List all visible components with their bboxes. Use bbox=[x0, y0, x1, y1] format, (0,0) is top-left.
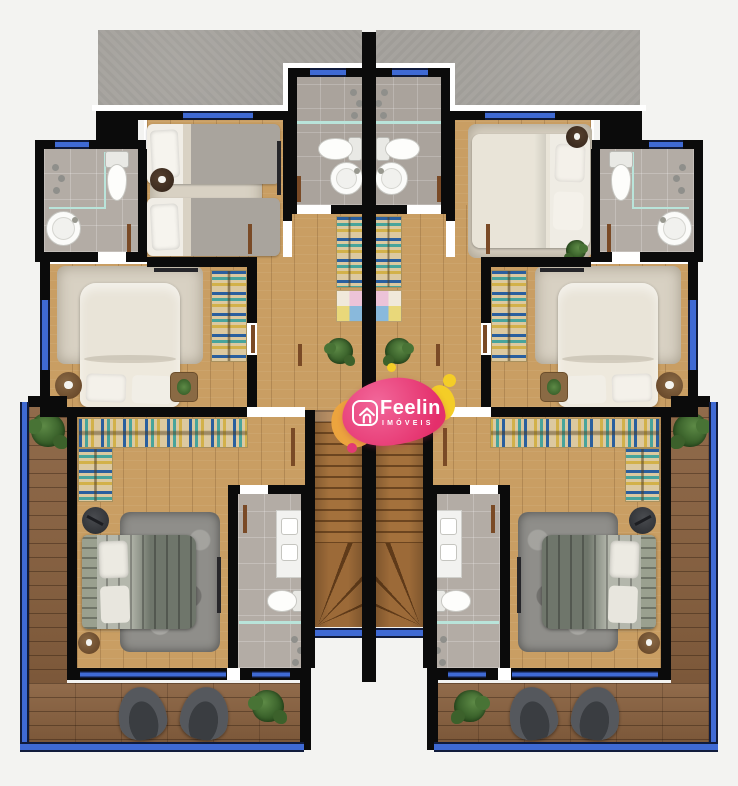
shower-glass-panel bbox=[239, 621, 301, 624]
wall bbox=[28, 396, 67, 407]
sliding-glass-door bbox=[512, 671, 658, 678]
wall bbox=[376, 205, 407, 214]
door-leaf bbox=[298, 344, 302, 366]
potted-plant bbox=[327, 338, 353, 364]
window bbox=[485, 111, 555, 120]
door-leaf bbox=[243, 505, 247, 533]
window bbox=[40, 300, 50, 370]
double-sink-vanity bbox=[436, 510, 462, 578]
door-leaf bbox=[248, 224, 252, 254]
toilet bbox=[609, 151, 635, 200]
door-leaf bbox=[483, 325, 487, 353]
wall bbox=[147, 257, 248, 267]
wardrobe-shelf bbox=[490, 418, 660, 448]
window bbox=[392, 68, 428, 77]
wall bbox=[490, 257, 591, 267]
window bbox=[183, 111, 253, 120]
wall bbox=[694, 149, 703, 252]
unit-left bbox=[0, 0, 369, 786]
wall bbox=[592, 140, 703, 149]
side-table bbox=[150, 168, 174, 192]
tv-panel bbox=[217, 557, 221, 613]
wall bbox=[35, 149, 44, 252]
wall bbox=[423, 494, 437, 668]
wall bbox=[228, 485, 240, 494]
round-sink bbox=[46, 211, 81, 246]
shower-knobs bbox=[291, 636, 298, 643]
window bbox=[252, 671, 290, 678]
wall bbox=[688, 255, 698, 300]
storage-box bbox=[336, 290, 363, 322]
unit-right bbox=[369, 0, 738, 786]
door-threshold bbox=[240, 485, 268, 494]
shower-glass-enclosure bbox=[49, 152, 106, 209]
wardrobe-shelf bbox=[625, 448, 660, 502]
wall bbox=[288, 205, 297, 214]
door-leaf bbox=[291, 428, 295, 466]
stair-railing bbox=[376, 628, 423, 638]
door-threshold bbox=[612, 252, 640, 262]
shower-glass-panel bbox=[437, 621, 499, 624]
terrace-plant bbox=[31, 413, 65, 447]
tv-panel bbox=[277, 141, 281, 195]
wall bbox=[300, 680, 311, 750]
wall bbox=[228, 494, 238, 668]
door-threshold bbox=[446, 221, 455, 257]
wall bbox=[671, 396, 710, 407]
toilet bbox=[103, 151, 129, 200]
pouf bbox=[82, 507, 109, 534]
wardrobe bbox=[211, 270, 247, 362]
terrace-railing-bottom bbox=[434, 742, 718, 752]
wall bbox=[427, 485, 470, 494]
toilet bbox=[433, 588, 471, 612]
door-leaf bbox=[127, 224, 131, 252]
door-threshold bbox=[297, 205, 331, 214]
wardrobe bbox=[491, 270, 527, 362]
door-leaf bbox=[436, 344, 440, 366]
window bbox=[649, 140, 683, 149]
wall bbox=[500, 494, 510, 668]
door-threshold bbox=[98, 252, 126, 262]
door-threshold bbox=[433, 407, 491, 417]
door-threshold bbox=[283, 221, 292, 257]
side-table bbox=[78, 632, 100, 654]
door-leaf bbox=[491, 505, 495, 533]
wall bbox=[126, 252, 147, 262]
floorplan-canvas: Feelin IMÓVEIS bbox=[0, 0, 738, 786]
door-threshold bbox=[498, 668, 511, 680]
single-bed bbox=[147, 198, 280, 256]
wall bbox=[441, 205, 450, 214]
hallway-shelf bbox=[375, 216, 402, 288]
door-threshold bbox=[470, 485, 498, 494]
door-threshold bbox=[407, 205, 441, 214]
nightstand-tray bbox=[55, 372, 82, 399]
door-threshold bbox=[227, 668, 240, 680]
terrace-railing-bottom bbox=[20, 742, 304, 752]
wall bbox=[661, 407, 671, 668]
terrace-plant bbox=[673, 413, 707, 447]
wall bbox=[301, 494, 315, 668]
wall bbox=[138, 149, 147, 252]
double-sink-vanity bbox=[276, 510, 302, 578]
terrace-plant bbox=[454, 690, 486, 722]
round-sink bbox=[330, 162, 363, 195]
double-bed bbox=[558, 283, 658, 407]
shower-knobs bbox=[381, 89, 388, 96]
wall bbox=[35, 140, 146, 149]
shower-glass-enclosure bbox=[632, 152, 689, 209]
toilet bbox=[267, 588, 305, 612]
door-leaf bbox=[607, 224, 611, 252]
master-bed bbox=[542, 535, 656, 629]
wall bbox=[591, 149, 600, 252]
door-leaf bbox=[486, 224, 490, 254]
wall bbox=[481, 257, 491, 323]
wall bbox=[268, 485, 311, 494]
wall bbox=[331, 205, 362, 214]
window bbox=[448, 671, 486, 678]
shower-glass-panel bbox=[297, 121, 362, 124]
stair-winder-treads bbox=[376, 543, 423, 627]
toilet bbox=[318, 135, 362, 161]
wall bbox=[67, 407, 77, 668]
toilet bbox=[376, 135, 420, 161]
wall bbox=[427, 680, 438, 750]
door-leaf bbox=[437, 176, 441, 202]
nightstand bbox=[540, 372, 568, 402]
terrace-railing-left bbox=[20, 402, 29, 750]
tv-panel bbox=[154, 268, 198, 272]
party-wall bbox=[369, 32, 376, 682]
door-leaf bbox=[297, 176, 301, 202]
master-bed bbox=[82, 535, 196, 629]
stair-winder-treads bbox=[315, 543, 362, 627]
side-table bbox=[638, 632, 660, 654]
shower-knobs bbox=[679, 164, 686, 171]
shower-knobs bbox=[350, 89, 357, 96]
terrace-plant bbox=[252, 690, 284, 722]
potted-plant bbox=[385, 338, 411, 364]
party-wall bbox=[362, 32, 369, 682]
window bbox=[688, 300, 698, 370]
nightstand bbox=[170, 372, 198, 402]
wall bbox=[40, 255, 50, 300]
wall bbox=[441, 77, 450, 205]
round-sink bbox=[657, 211, 692, 246]
tv-panel bbox=[517, 557, 521, 613]
double-bed bbox=[80, 283, 180, 407]
window bbox=[310, 68, 346, 77]
wall bbox=[498, 485, 510, 494]
window bbox=[55, 140, 89, 149]
storage-box bbox=[375, 290, 402, 322]
wall bbox=[591, 252, 612, 262]
sliding-glass-door bbox=[80, 671, 226, 678]
stair-railing bbox=[315, 628, 362, 638]
terrace-railing-left bbox=[709, 402, 718, 750]
round-sink bbox=[375, 162, 408, 195]
wardrobe-shelf bbox=[78, 448, 113, 502]
wall bbox=[247, 257, 257, 323]
wall bbox=[288, 77, 297, 205]
shower-glass-panel bbox=[376, 121, 441, 124]
side-table bbox=[566, 126, 588, 148]
nightstand-tray bbox=[656, 372, 683, 399]
wall bbox=[247, 355, 257, 407]
wardrobe-shelf bbox=[78, 418, 248, 448]
wall bbox=[481, 355, 491, 407]
door-threshold bbox=[247, 407, 305, 417]
shower-knobs bbox=[440, 636, 447, 643]
shower-knobs bbox=[52, 164, 59, 171]
hallway-shelf bbox=[336, 216, 363, 288]
tv-panel bbox=[540, 268, 584, 272]
door-leaf bbox=[251, 325, 255, 353]
pouf bbox=[629, 507, 656, 534]
door-leaf bbox=[443, 428, 447, 466]
